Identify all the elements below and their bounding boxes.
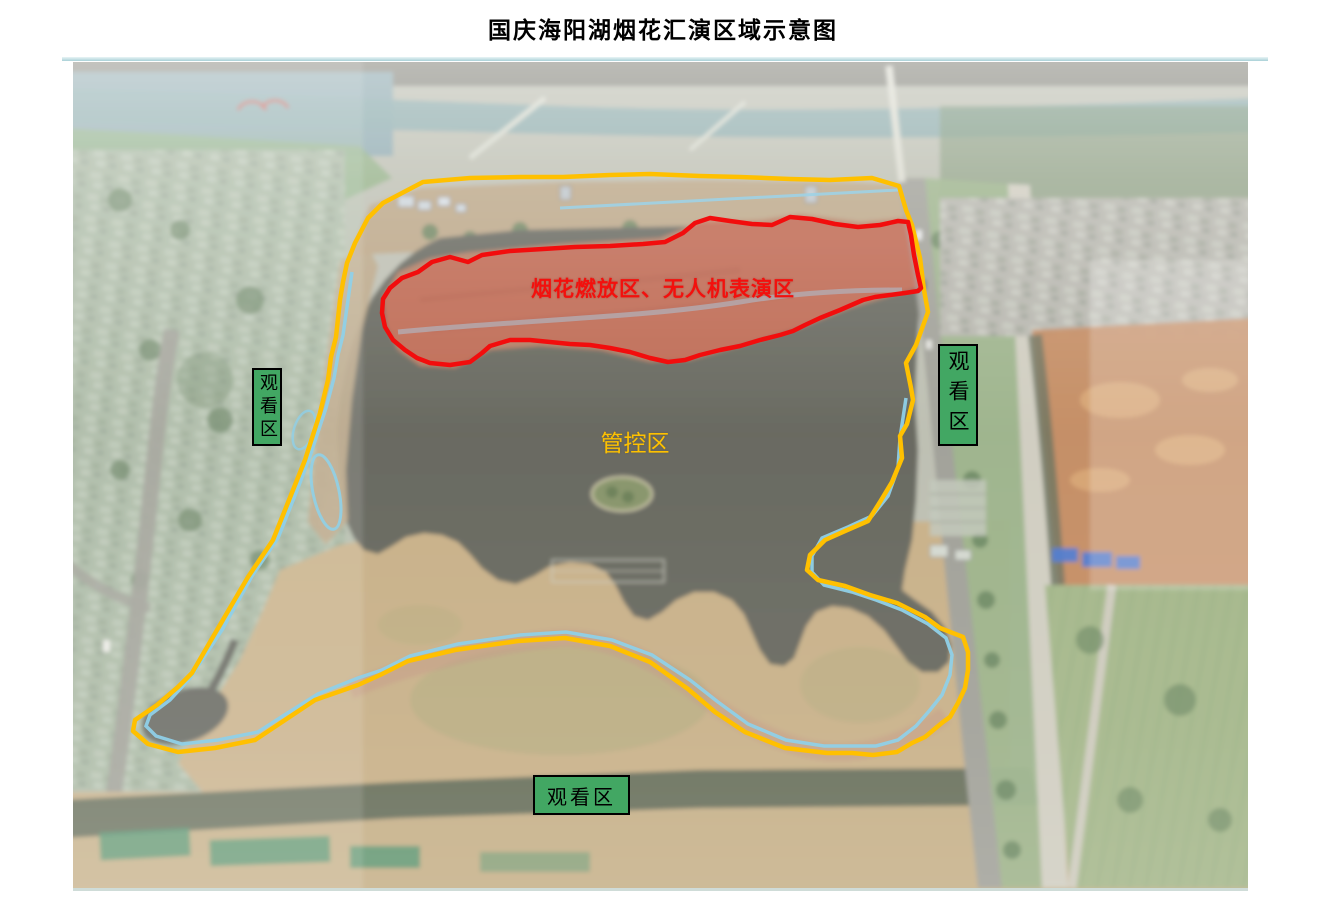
- viewing-area-box-right: 观看区: [938, 344, 978, 446]
- viewing-area-label: 观看区: [254, 373, 280, 442]
- title-divider-line: [62, 57, 1268, 61]
- control-zone-label: 管控区: [579, 424, 691, 458]
- schematic-page: 国庆海阳湖烟花汇演区域示意图: [0, 0, 1326, 905]
- photo-terrain: [73, 62, 1248, 888]
- viewing-area-label: 观看区: [943, 350, 973, 440]
- fireworks-zone-label: 烟花燃放区、无人机表演区: [511, 273, 815, 303]
- viewing-area-box-left: 观看区: [252, 368, 282, 446]
- aerial-photo-canvas: [73, 62, 1248, 888]
- page-title: 国庆海阳湖烟花汇演区域示意图: [0, 11, 1326, 45]
- aerial-photo: 烟花燃放区、无人机表演区 管控区 观看区 观看区 观看区: [73, 62, 1248, 891]
- viewing-area-box-bottom: 观看区: [533, 775, 630, 815]
- viewing-area-label: 观看区: [547, 781, 616, 810]
